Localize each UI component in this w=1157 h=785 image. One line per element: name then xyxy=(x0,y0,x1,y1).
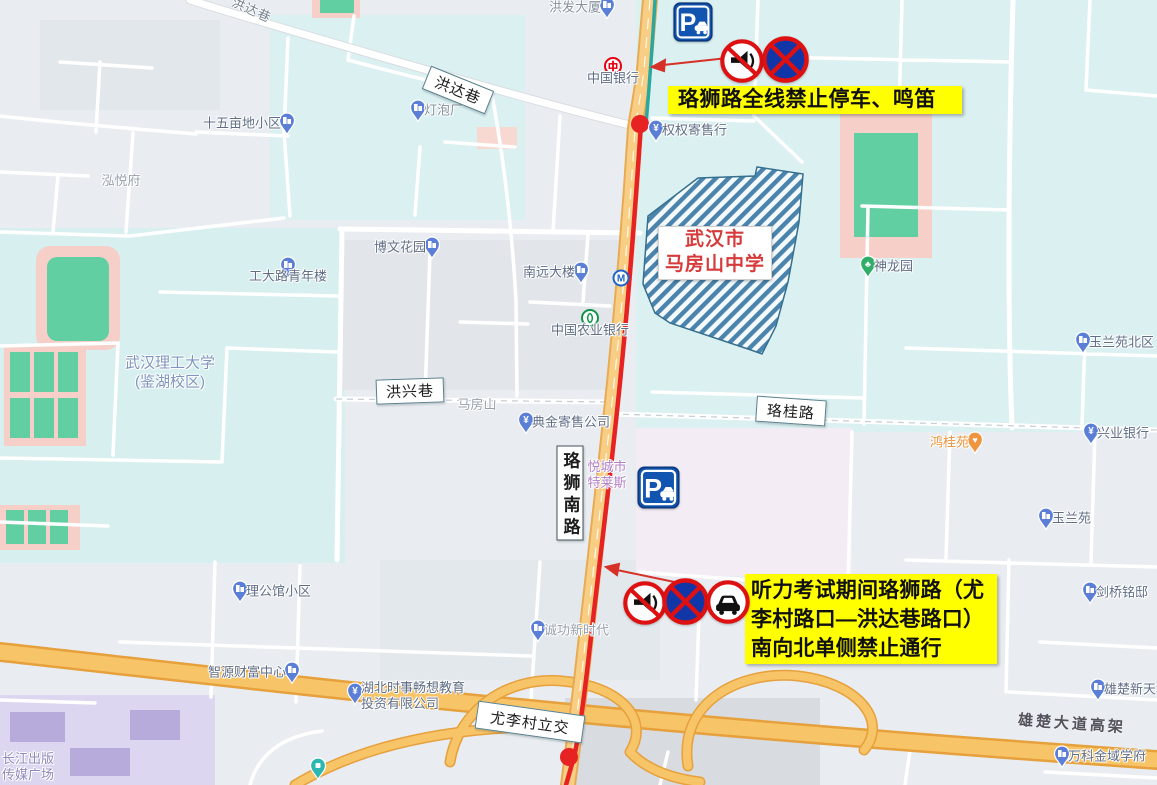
map-canvas[interactable]: 洪发大厦中国银行¥权权寄售行灯泡厂十五亩地小区泓悦府博文花园南远大楼工大路青年楼… xyxy=(0,0,1157,785)
parking-sign-top: P xyxy=(673,2,713,42)
no-vehicles-sign-bottom xyxy=(706,580,750,624)
svg-text:P: P xyxy=(680,9,697,37)
no-horn-sign-top xyxy=(720,39,764,83)
no-horn-sign-bottom xyxy=(623,581,667,625)
svg-text:P: P xyxy=(644,473,662,503)
no-stopping-sign-top xyxy=(762,36,809,83)
parking-sign-mid: P xyxy=(637,466,680,509)
no-stopping-sign-bottom xyxy=(662,578,709,625)
traffic-sign-layer: PP xyxy=(0,0,1157,785)
